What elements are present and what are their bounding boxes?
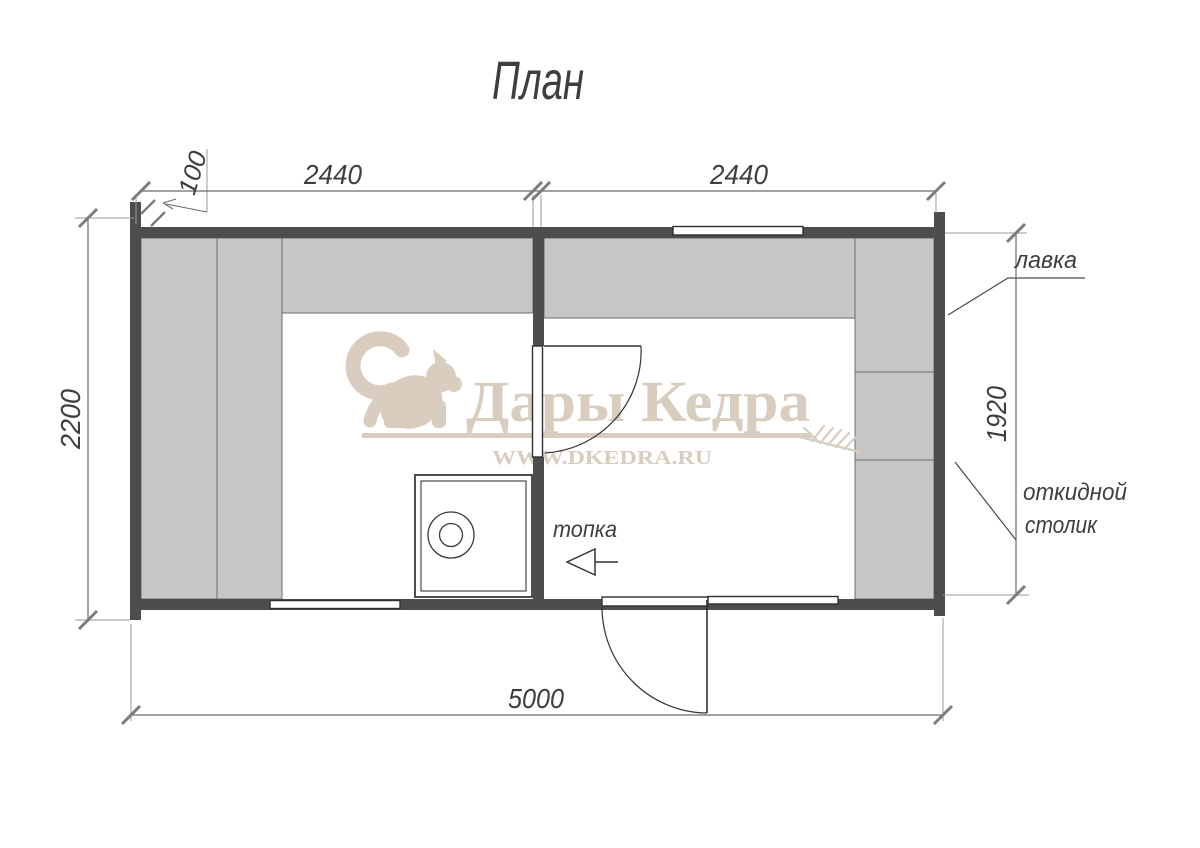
right-room-folding-table [855, 372, 934, 460]
right-room-top-bench [544, 238, 855, 318]
left-room-top-bench [282, 238, 533, 313]
middle-wall-upper [533, 238, 544, 346]
folding-table-label-leader [955, 462, 1016, 540]
floor-plan-page: Дары Кедра WWW.DKEDRA.RU [0, 0, 1200, 848]
wall-thickness-callout [141, 199, 207, 226]
firebox-label: топка [553, 516, 617, 542]
firebox-arrow-icon [567, 549, 618, 575]
right-room-side-bench-bottom [855, 460, 934, 599]
entrance-door-threshold [602, 597, 708, 606]
dim-top-right-span: 2440 [709, 159, 768, 190]
left-room-bench-column-2 [217, 238, 282, 599]
squirrel-hind-foot [384, 418, 410, 428]
dim-right-span: 1920 [981, 386, 1012, 442]
squirrel-snout [446, 376, 462, 392]
middle-wall-lower [533, 457, 544, 599]
right-wall [934, 212, 945, 616]
watermark: Дары Кедра WWW.DKEDRA.RU [353, 339, 860, 469]
interior-door-opening [533, 346, 543, 457]
watermark-brand: Дары Кедра [466, 369, 810, 434]
top-window [673, 227, 803, 236]
folding-table-label-line2: столик [1025, 512, 1098, 539]
folding-table-label-line1: откидной [1023, 479, 1127, 506]
firebox-arrow-head [567, 549, 595, 575]
stove [415, 475, 532, 597]
squirrel-icon [353, 339, 462, 438]
left-wall [130, 202, 141, 620]
dim-bottom-span: 5000 [508, 683, 564, 714]
page-title: План [492, 51, 584, 111]
floor-plan-drawing: Дары Кедра WWW.DKEDRA.RU [0, 0, 1200, 848]
bottom-left-window [270, 601, 400, 609]
bottom-right-window [708, 597, 838, 605]
top-wall [141, 227, 934, 238]
left-room-bench-column-1 [141, 238, 217, 599]
bench-label: лавка [1013, 247, 1077, 274]
squirrel-front-leg [432, 400, 446, 428]
right-room-side-bench-top [855, 238, 934, 372]
watermark-url: WWW.DKEDRA.RU [492, 447, 712, 469]
dim-left-span: 2200 [55, 389, 86, 450]
entrance-door-swing-arc [602, 607, 707, 713]
dim-top-left-span: 2440 [303, 159, 362, 190]
